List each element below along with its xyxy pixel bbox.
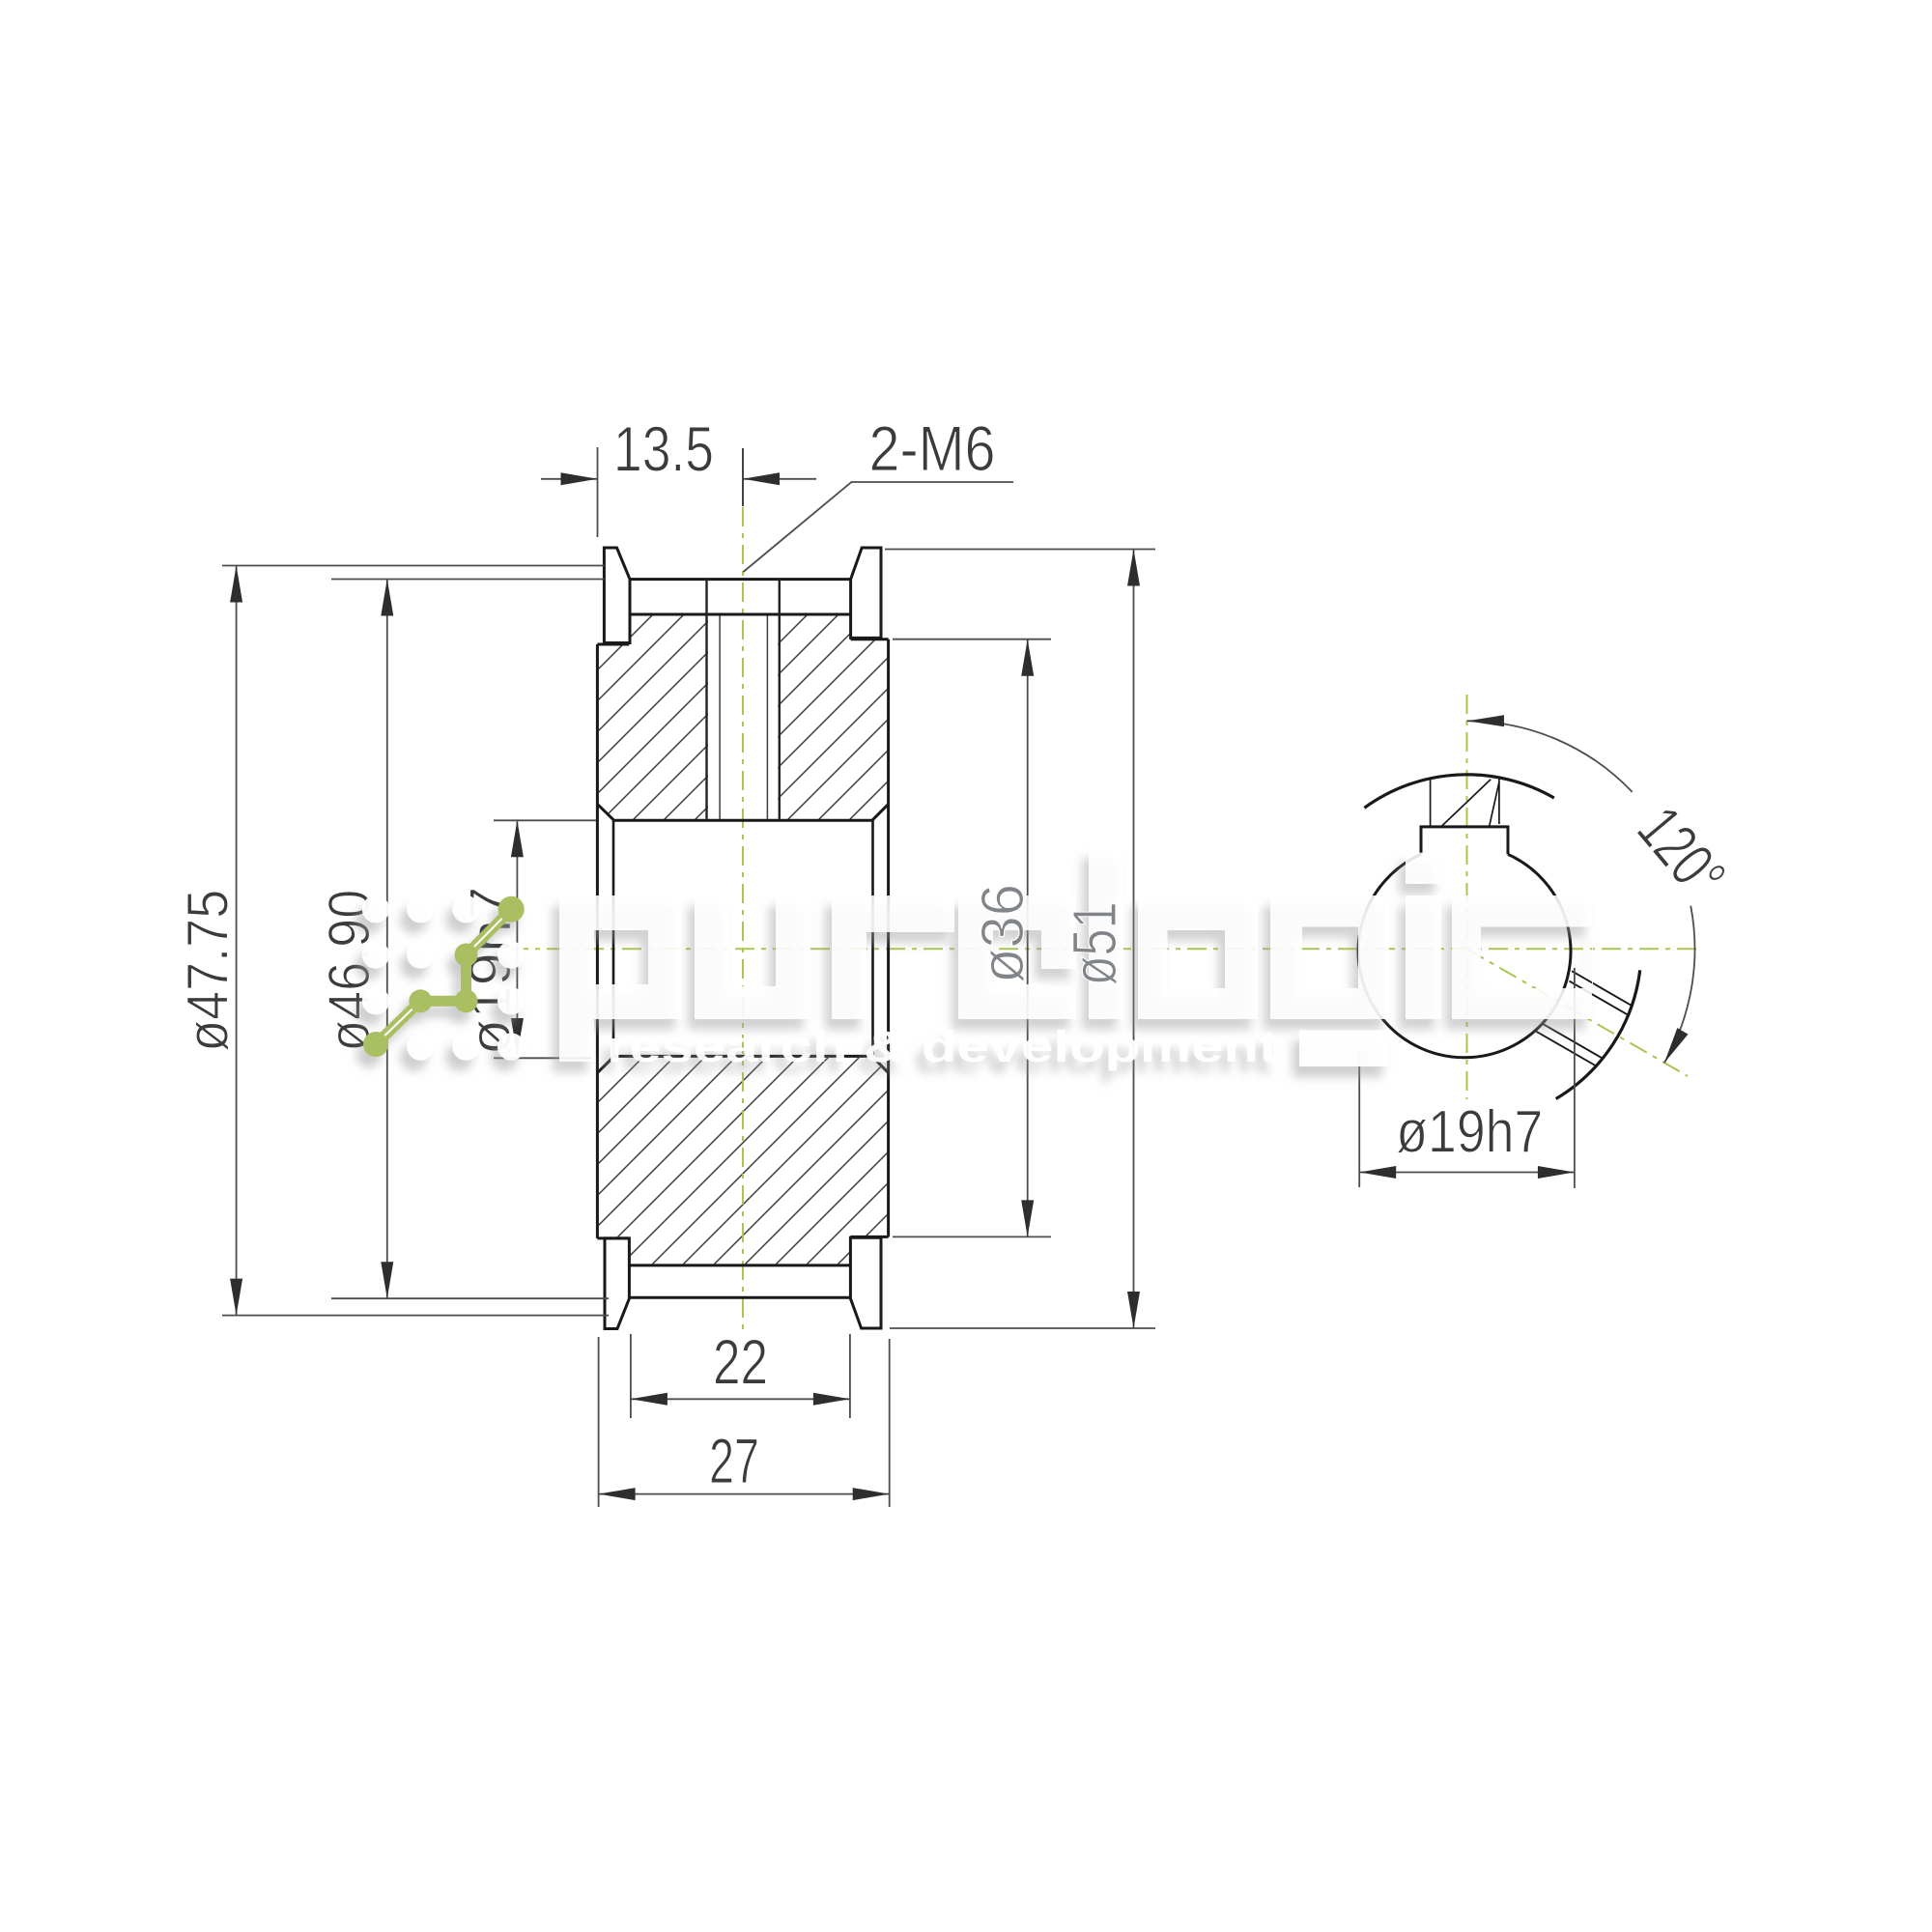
svg-text:13.5: 13.5 [613, 413, 714, 485]
svg-text:ø36: ø36 [970, 884, 1037, 983]
svg-text:ø19h7: ø19h7 [1396, 1099, 1543, 1166]
svg-text:22: 22 [713, 1326, 768, 1398]
svg-text:ø51: ø51 [1060, 901, 1129, 985]
svg-text:research & development: research & development [607, 1022, 1278, 1071]
svg-text:27: 27 [709, 1425, 759, 1496]
svg-text:2-M6: 2-M6 [869, 412, 996, 484]
svg-text:ø47.75: ø47.75 [175, 890, 240, 1052]
